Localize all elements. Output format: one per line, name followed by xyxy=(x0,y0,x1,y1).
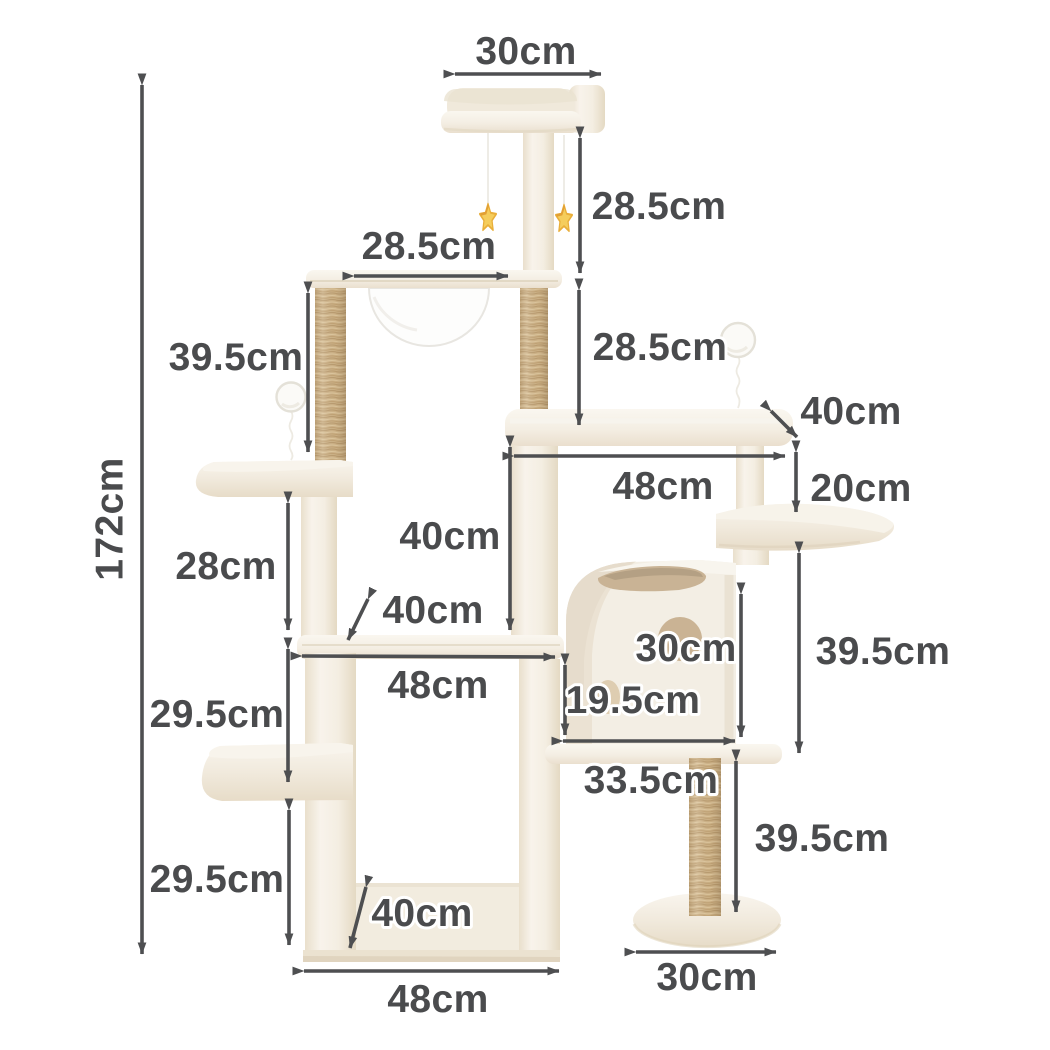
svg-text:33.5cm: 33.5cm xyxy=(584,759,719,802)
svg-text:39.5cm: 39.5cm xyxy=(169,336,304,379)
svg-text:40cm: 40cm xyxy=(371,892,472,935)
svg-text:39.5cm: 39.5cm xyxy=(755,817,890,860)
svg-text:30cm: 30cm xyxy=(656,956,757,999)
svg-text:19.5cm: 19.5cm xyxy=(566,679,701,722)
svg-text:40cm: 40cm xyxy=(800,390,901,433)
svg-text:28.5cm: 28.5cm xyxy=(592,185,727,228)
svg-text:29.5cm: 29.5cm xyxy=(150,858,285,901)
svg-text:48cm: 48cm xyxy=(612,465,713,508)
svg-text:30cm: 30cm xyxy=(475,30,576,73)
svg-text:28cm: 28cm xyxy=(175,545,276,588)
svg-text:39.5cm: 39.5cm xyxy=(816,630,951,673)
svg-text:30cm: 30cm xyxy=(635,627,736,670)
svg-text:40cm: 40cm xyxy=(399,515,500,558)
svg-text:20cm: 20cm xyxy=(810,467,911,510)
svg-text:29.5cm: 29.5cm xyxy=(150,693,285,736)
svg-text:28.5cm: 28.5cm xyxy=(593,326,728,369)
svg-text:48cm: 48cm xyxy=(387,664,488,707)
svg-text:40cm: 40cm xyxy=(382,589,483,632)
svg-text:172cm: 172cm xyxy=(88,457,131,580)
svg-text:28.5cm: 28.5cm xyxy=(362,225,497,268)
svg-text:48cm: 48cm xyxy=(387,978,488,1021)
